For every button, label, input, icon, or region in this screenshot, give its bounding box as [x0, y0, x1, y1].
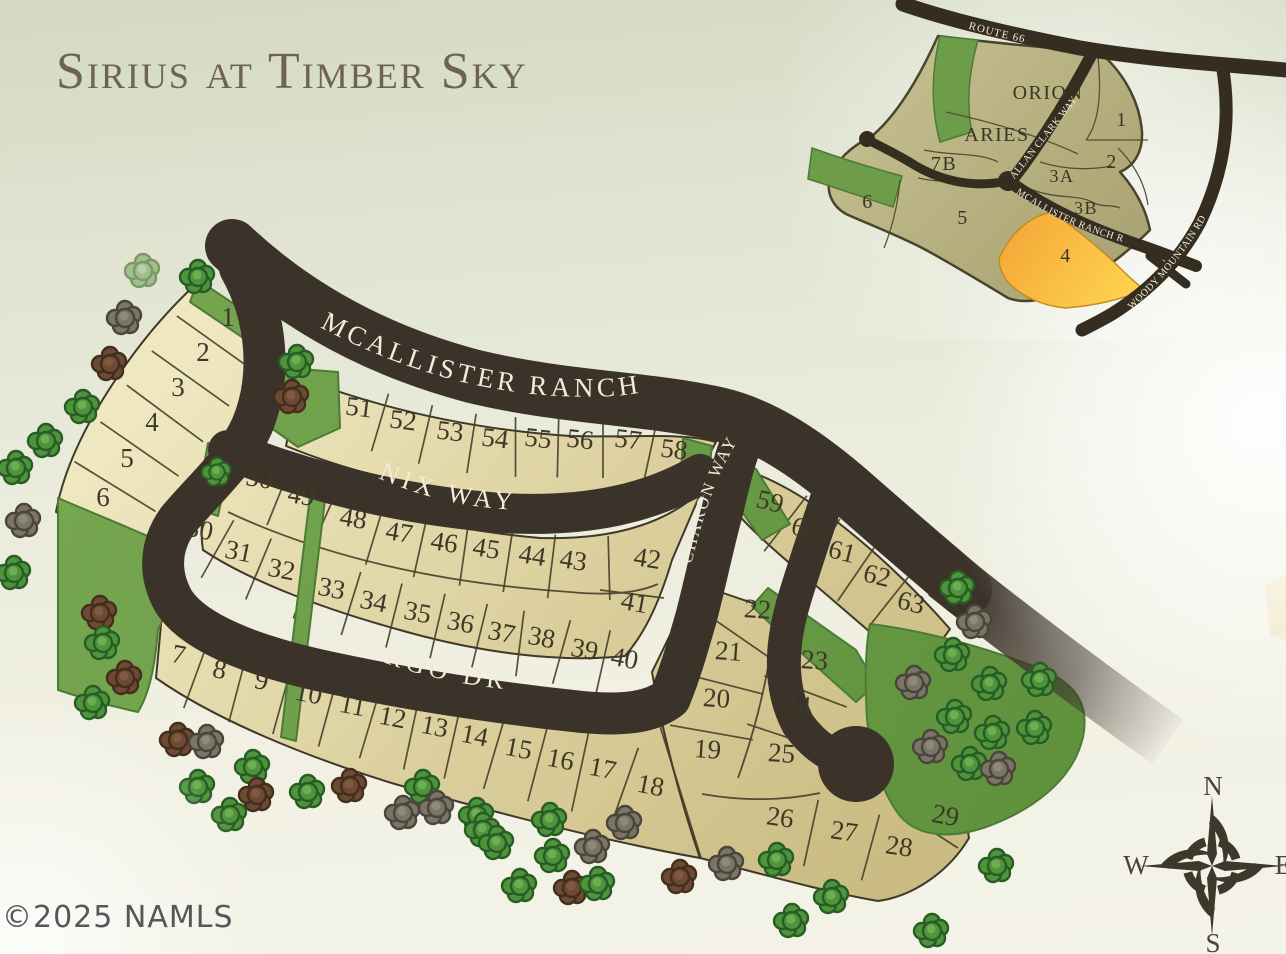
inset-parcel-label-3B: 3B: [1074, 198, 1098, 218]
page-title: Sirius at Timber Sky: [56, 42, 528, 101]
inset-parcel-label-ORION: ORION: [1013, 82, 1084, 104]
inset-parcel-label-3A: 3A: [1050, 166, 1075, 186]
inset-parcel-label-6: 6: [862, 191, 874, 213]
inset-parcel-label-7B: 7B: [931, 153, 957, 175]
plat-map-page: MCALLISTER RANCH RDNIX WAYVIRGO DRCHARON…: [0, 0, 1286, 954]
inset-parcel-label-5: 5: [957, 207, 969, 229]
plat-map-svg: MCALLISTER RANCH RDNIX WAYVIRGO DRCHARON…: [0, 0, 1286, 954]
inset-parcel-label-4: 4: [1060, 245, 1072, 267]
compass-north-label: N: [1203, 771, 1223, 801]
copyright-watermark: ©2025 NAMLS: [2, 900, 234, 935]
inset-parcel-label-1: 1: [1116, 109, 1128, 131]
compass-south-label: S: [1205, 928, 1220, 954]
inset-spur-end-dot: [859, 131, 875, 147]
compass-east-label: E: [1275, 850, 1286, 880]
inset-parcel-label-ARIES: ARIES: [964, 124, 1029, 146]
inset-parcel-label-2: 2: [1106, 151, 1118, 173]
compass-west-label: W: [1123, 850, 1149, 880]
